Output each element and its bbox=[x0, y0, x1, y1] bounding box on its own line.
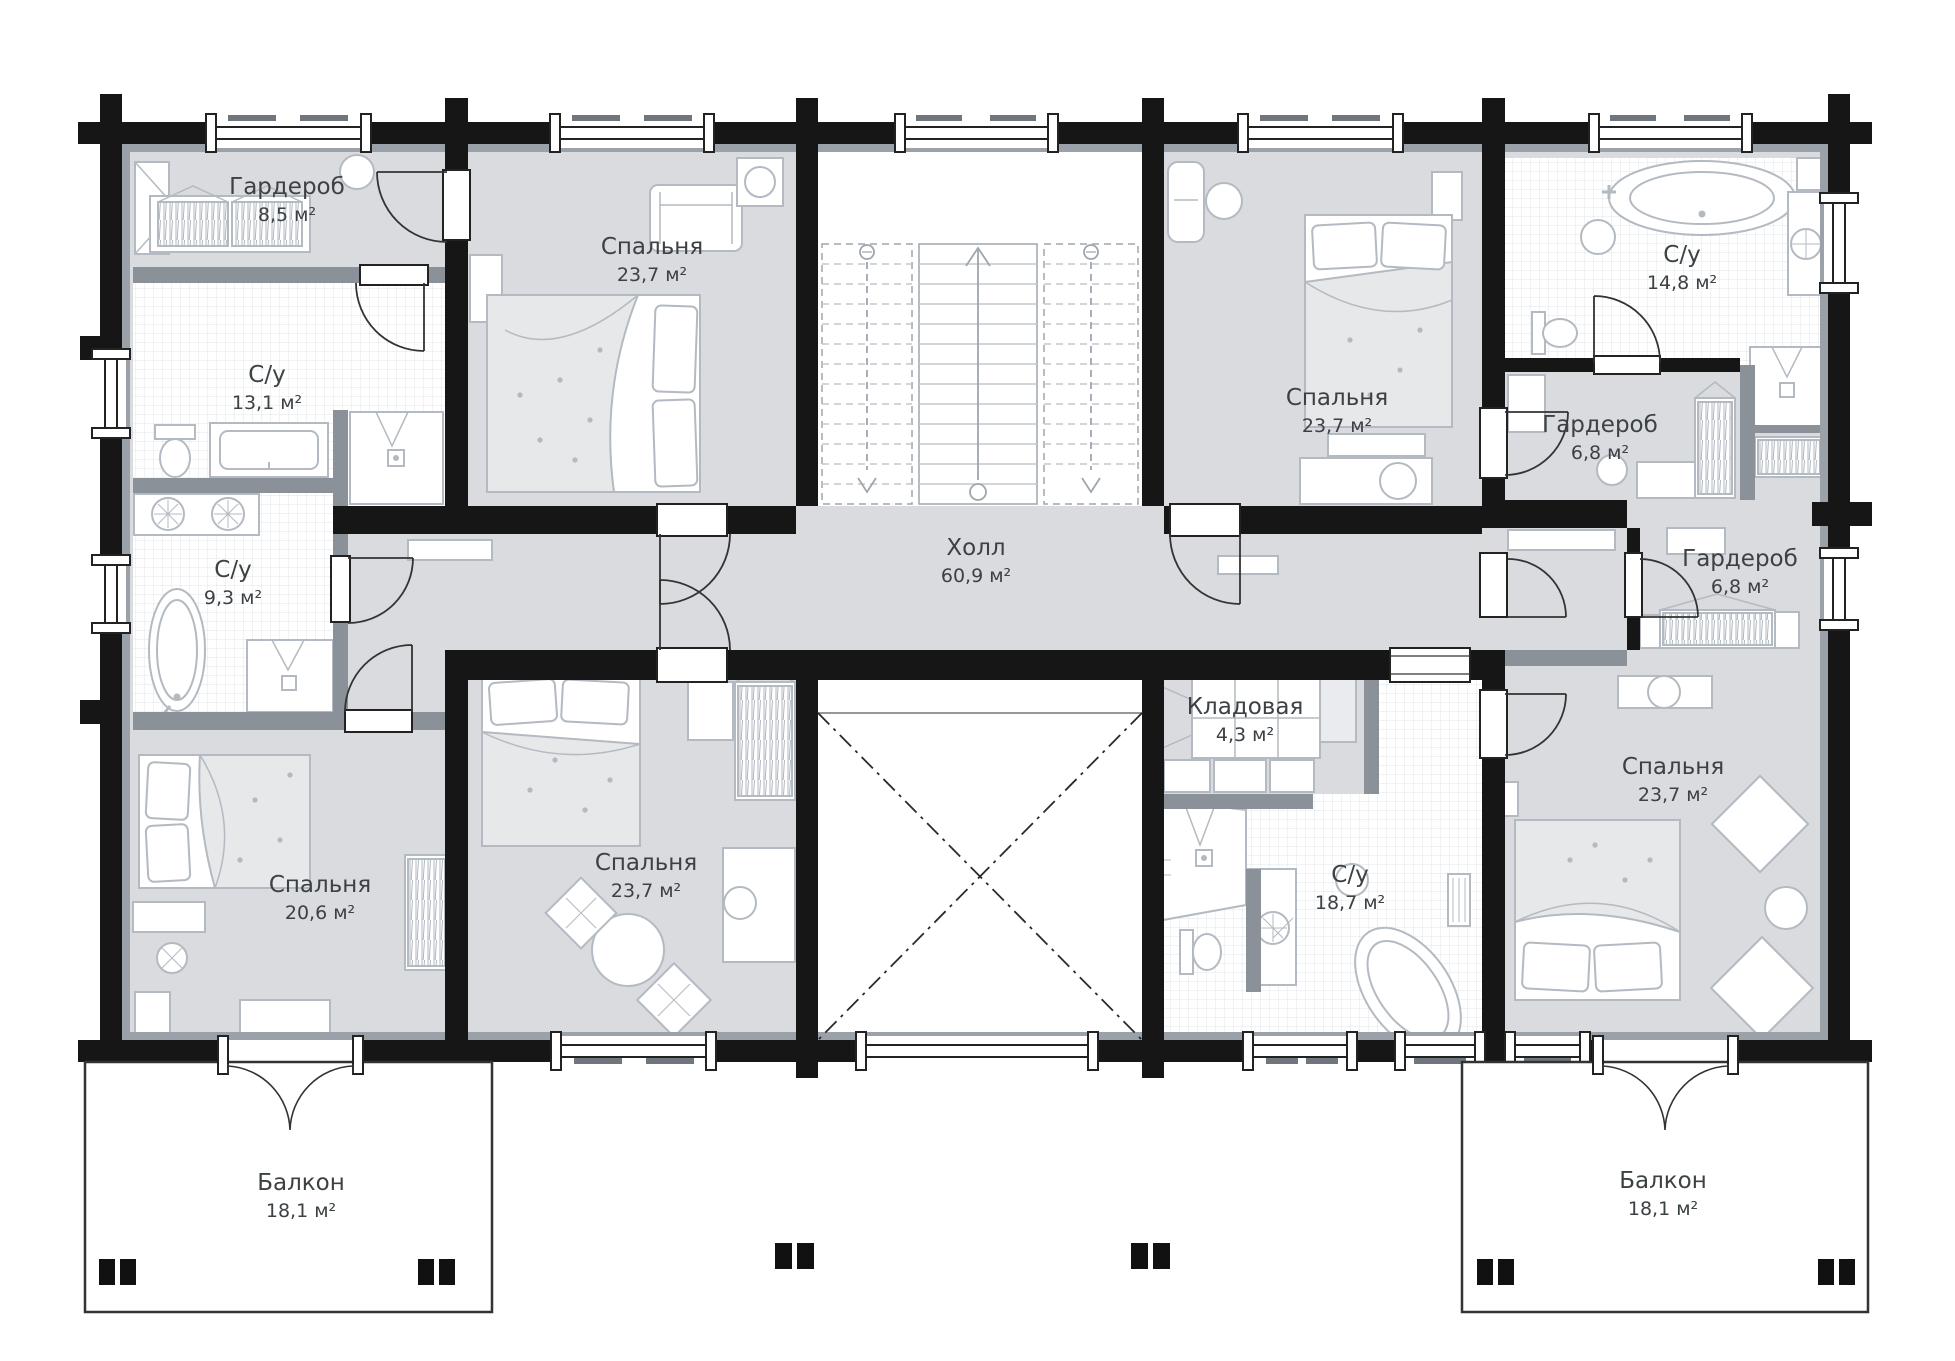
floor-plan: Гардероб 8,5 м² С/у 13,1 м² Спальня 23,7… bbox=[0, 0, 1955, 1361]
floor-plan-drawing bbox=[0, 0, 1955, 1361]
balconies bbox=[85, 1036, 1868, 1312]
